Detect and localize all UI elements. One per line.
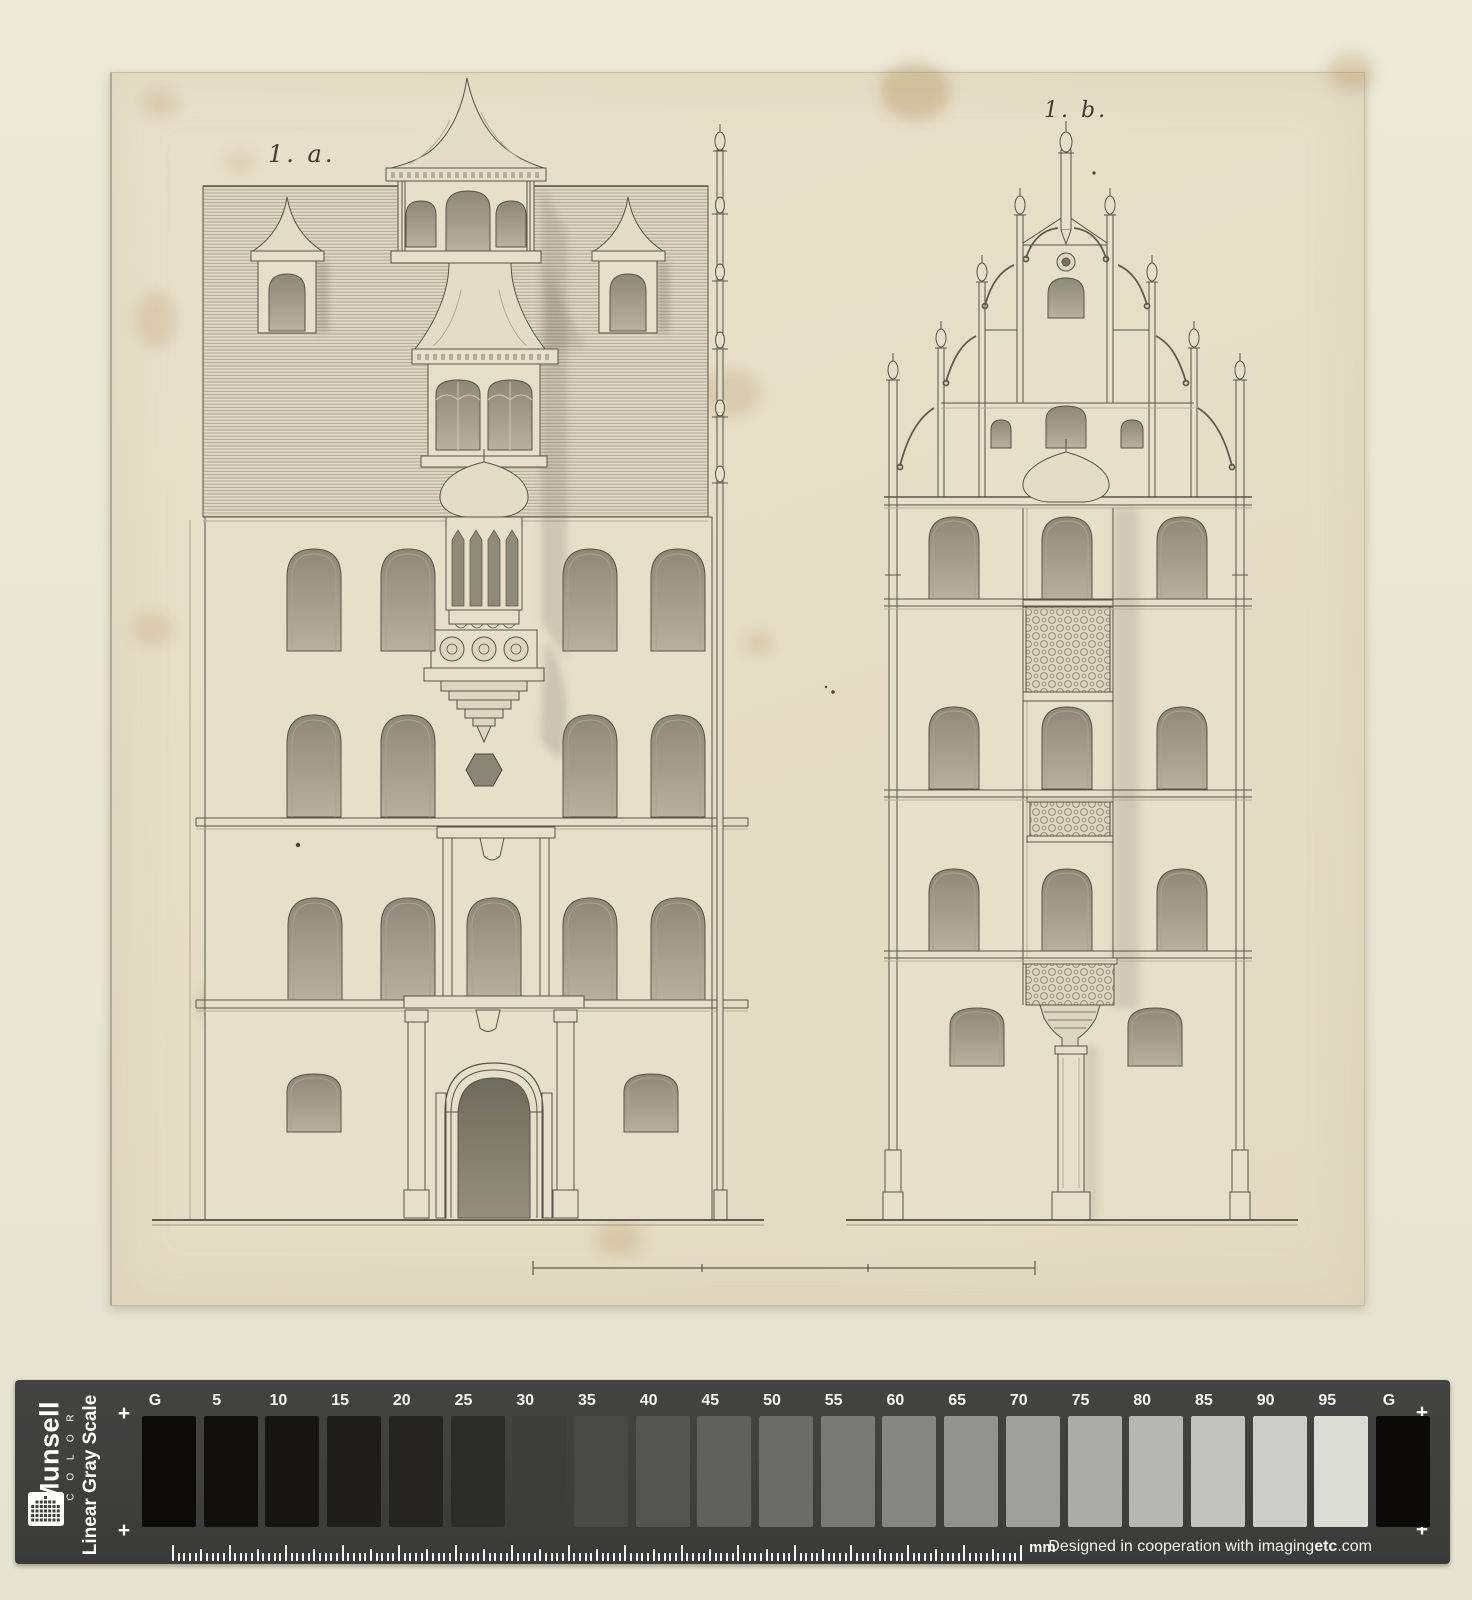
gray-patch-11-55 — [821, 1416, 875, 1527]
gray-patch-label: 55 — [807, 1392, 861, 1410]
munsell-brand-label: Munsell — [35, 1401, 66, 1505]
drawn-scale-bar — [533, 1261, 1035, 1275]
facade-b — [846, 121, 1298, 1225]
gray-patch-label: 40 — [622, 1392, 676, 1410]
scanned-plate-photo: 1. a. 1. b. Munsell C O L O R Linear Gra… — [0, 0, 1472, 1600]
gray-patch-label: 70 — [992, 1392, 1046, 1410]
credit-line: Designed in cooperation with imagingetc.… — [1048, 1538, 1372, 1556]
gray-patch-label: 25 — [437, 1392, 491, 1410]
engraving-two-facades: 1. a. 1. b. — [0, 0, 1472, 1600]
gray-patch-label: 20 — [375, 1392, 429, 1410]
facade-a — [152, 78, 764, 1225]
gray-patch-8-40 — [636, 1416, 690, 1527]
munsell-color-label: C O L O R — [66, 1409, 77, 1500]
gray-patch-7-35 — [574, 1416, 628, 1527]
gray-patch-label: 65 — [930, 1392, 984, 1410]
credit-prefix: Designed in cooperation with imaging — [1048, 1538, 1314, 1555]
gray-patch-label: 95 — [1300, 1392, 1354, 1410]
munsell-logo-icon — [28, 1492, 64, 1526]
gray-patch-label: 85 — [1177, 1392, 1231, 1410]
gray-patch-2-10 — [265, 1416, 319, 1527]
gray-patch-label: 50 — [745, 1392, 799, 1410]
gray-patch-16-80 — [1129, 1416, 1183, 1527]
gray-patch-label: G — [128, 1392, 182, 1410]
gray-patch-14-70 — [1006, 1416, 1060, 1527]
gray-patch-6-30 — [512, 1416, 566, 1527]
figure-label-a: 1. a. — [268, 140, 335, 168]
gray-patch-17-85 — [1191, 1416, 1245, 1527]
gray-patch-label: G — [1362, 1392, 1416, 1410]
credit-suffix: .com — [1337, 1538, 1372, 1555]
gray-patch-label: 35 — [560, 1392, 614, 1410]
gray-patch-label: 45 — [683, 1392, 737, 1410]
gray-patch-5-25 — [451, 1416, 505, 1527]
gray-patch-label: 5 — [190, 1392, 244, 1410]
gray-patch-20-G — [1376, 1416, 1430, 1527]
finial-pole — [712, 124, 728, 1220]
gray-patch-18-90 — [1253, 1416, 1307, 1527]
gray-patch-4-20 — [389, 1416, 443, 1527]
gray-patch-label: 90 — [1239, 1392, 1293, 1410]
gray-patch-1-5 — [204, 1416, 258, 1527]
gray-patch-15-75 — [1068, 1416, 1122, 1527]
gray-patch-label: 10 — [251, 1392, 305, 1410]
ruler — [172, 1541, 1024, 1561]
gray-patch-label: 60 — [868, 1392, 922, 1410]
gray-patch-9-45 — [697, 1416, 751, 1527]
figure-label-b: 1. b. — [1044, 98, 1108, 123]
gray-patch-label: 75 — [1054, 1392, 1108, 1410]
credit-bold: etc — [1314, 1538, 1337, 1555]
munsell-gray-scale-bar: Munsell C O L O R Linear Gray Scale + + … — [15, 1380, 1450, 1564]
gray-patch-13-65 — [944, 1416, 998, 1527]
gray-patch-12-60 — [882, 1416, 936, 1527]
gray-patch-label: 30 — [498, 1392, 552, 1410]
gray-patch-label: 80 — [1115, 1392, 1169, 1410]
gray-patch-label: 15 — [313, 1392, 367, 1410]
gray-patch-10-50 — [759, 1416, 813, 1527]
gray-patch-0-G — [142, 1416, 196, 1527]
gray-patch-3-15 — [327, 1416, 381, 1527]
gray-patch-19-95 — [1314, 1416, 1368, 1527]
scale-title: Linear Gray Scale — [80, 1395, 102, 1556]
registration-mark: + — [115, 1521, 133, 1541]
